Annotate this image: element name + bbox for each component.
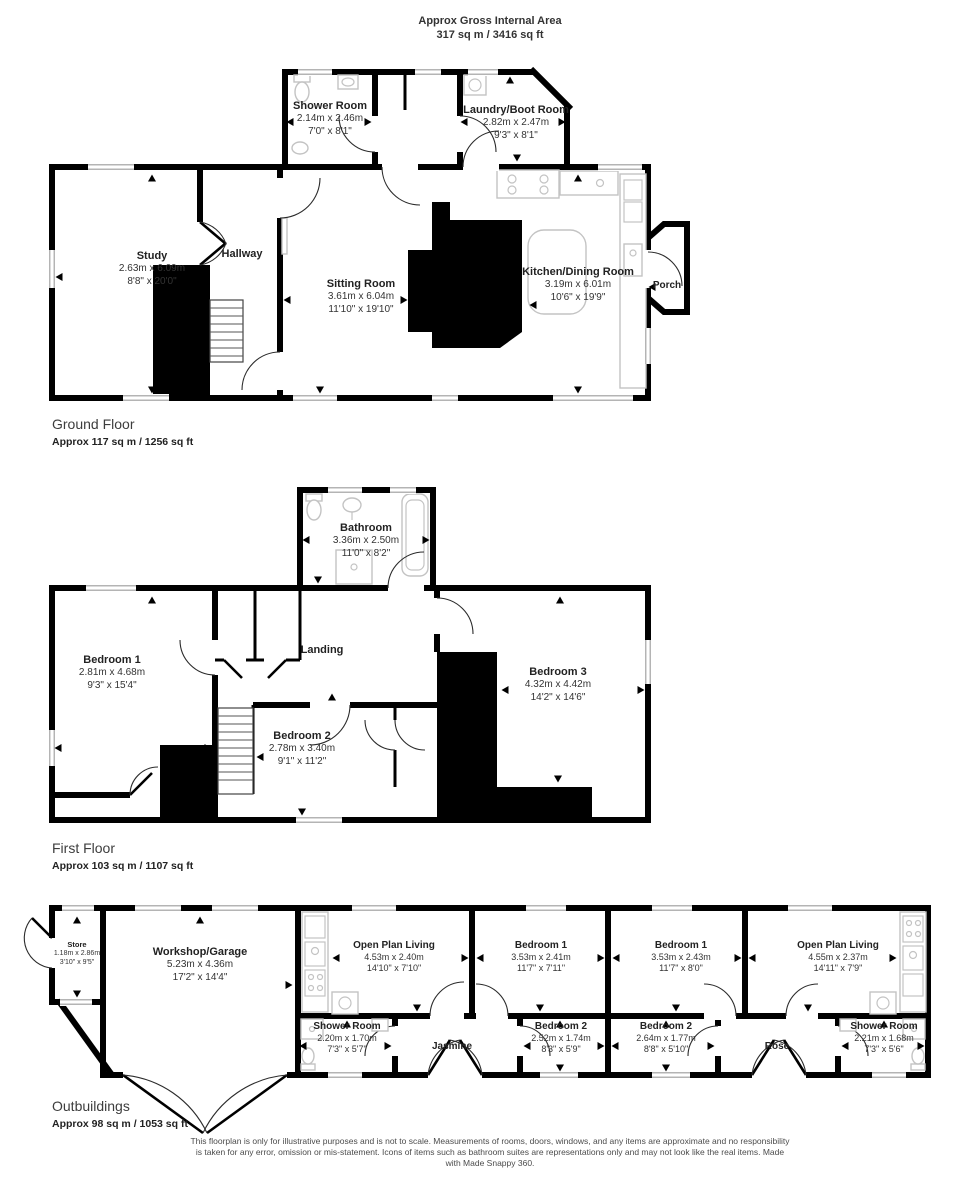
bathtub-icon — [402, 494, 428, 576]
washing-machine-icon — [464, 75, 486, 95]
cottage-label-rose: Rose — [765, 1041, 789, 1053]
room-label-jasmine-bedroom-1: Bedroom 1 3.53m x 2.41m 11'7" x 7'11" — [511, 940, 571, 975]
room-label-shower-room: Shower Room 2.14m x 2.46m 7'0" x 8'1" — [293, 100, 367, 139]
room-label-landing: Landing — [301, 644, 344, 657]
room-label-laundry-boot-room: Laundry/Boot Room 2.82m x 2.47m 9'3" x 8… — [463, 104, 569, 143]
radiator — [282, 218, 287, 254]
cottage-label-jasmine: Jasmine — [432, 1041, 472, 1053]
gross-area-title: Approx Gross Internal Area — [418, 14, 561, 28]
ground-floor-caption: Ground Floor Approx 117 sq m / 1256 sq f… — [52, 416, 193, 448]
stairs-icon — [210, 300, 243, 362]
ground-floor-plan — [48, 64, 687, 402]
stove-icon — [497, 170, 559, 198]
room-label-workshop-garage: Workshop/Garage 5.23m x 4.36m 17'2" x 14… — [153, 946, 248, 985]
room-label-jasmine-open-plan-living: Open Plan Living 4.53m x 2.40m 14'10" x … — [353, 940, 435, 975]
room-label-kitchen-dining-room: Kitchen/Dining Room 3.19m x 6.01m 10'6" … — [522, 266, 634, 305]
room-label-rose-shower-room: Shower Room 2.21m x 1.68m 7'3" x 5'6" — [850, 1021, 917, 1056]
toilet-icon — [294, 75, 310, 102]
shower-drain-icon — [292, 142, 308, 154]
gross-area-value: 317 sq m / 3416 sq ft — [418, 28, 561, 42]
room-label-rose-open-plan-living: Open Plan Living 4.55m x 2.37m 14'11" x … — [797, 940, 879, 975]
room-label-sitting-room: Sitting Room 3.61m x 6.04m 11'10" x 19'1… — [327, 278, 395, 317]
room-label-porch: Porch — [653, 280, 681, 292]
room-label-bathroom: Bathroom 3.36m x 2.50m 11'0" x 8'2" — [333, 522, 399, 561]
disclaimer-text: This floorplan is only for illustrative … — [190, 1136, 790, 1169]
floorplan-page: Approx Gross Internal Area 317 sq m / 34… — [0, 0, 980, 1181]
room-label-study: Study 2.63m x 6.09m 8'8" x 20'0" — [119, 250, 185, 289]
page-title: Approx Gross Internal Area 317 sq m / 34… — [418, 14, 561, 43]
room-label-hallway: Hallway — [222, 248, 263, 261]
room-label-store: Store 1.18m x 2.86m 3'10" x 9'5" — [54, 941, 100, 968]
outbuildings-caption: Outbuildings Approx 98 sq m / 1053 sq ft — [52, 1098, 188, 1130]
chimney-breast — [160, 745, 215, 820]
room-label-rose-bedroom-1: Bedroom 1 3.53m x 2.43m 11'7" x 8'0" — [651, 940, 711, 975]
toilet-icon — [306, 494, 322, 520]
room-label-jasmine-shower-room: Shower Room 2.20m x 1.70m 7'3" x 5'7" — [313, 1021, 380, 1056]
floorplan-drawing — [0, 0, 980, 1181]
stairs-icon — [218, 708, 253, 794]
first-floor-caption: First Floor Approx 103 sq m / 1107 sq ft — [52, 840, 193, 872]
room-label-bedroom-3: Bedroom 3 4.32m x 4.42m 14'2" x 14'6" — [525, 666, 591, 705]
sink-icon — [338, 75, 358, 89]
wall-mass — [437, 787, 592, 820]
room-label-rose-bedroom-2: Bedroom 2 2.64m x 1.77m 8'8" x 5'10" — [636, 1021, 696, 1056]
room-label-bedroom-2: Bedroom 2 2.78m x 3.40m 9'1" x 11'2" — [269, 730, 335, 769]
room-label-bedroom-1: Bedroom 1 2.81m x 4.68m 9'3" x 15'4" — [79, 654, 145, 693]
room-label-jasmine-bedroom-2: Bedroom 2 2.52m x 1.74m 8'3" x 5'9" — [531, 1021, 591, 1056]
